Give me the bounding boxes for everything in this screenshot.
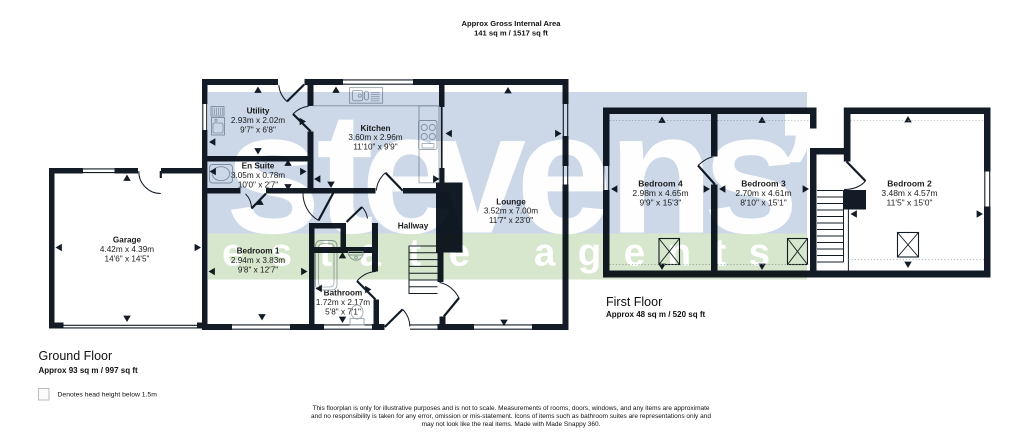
svg-text:and no responsibility is taken: and no responsibility is taken for any e… — [311, 413, 711, 420]
svg-text:’: ’ — [773, 76, 821, 270]
svg-text:1.72m x 2.17m: 1.72m x 2.17m — [316, 298, 370, 307]
svg-text:Ground Floor: Ground Floor — [39, 349, 113, 363]
svg-text:3.48m x 4.57m: 3.48m x 4.57m — [881, 188, 937, 198]
svg-text:Approx 48 sq m / 520 sq ft: Approx 48 sq m / 520 sq ft — [606, 310, 705, 319]
svg-text:v: v — [430, 76, 526, 270]
svg-text:Approx Gross Internal Area: Approx Gross Internal Area — [462, 19, 562, 28]
svg-text:5'8" x 7'1": 5'8" x 7'1" — [325, 307, 361, 316]
svg-text:4.42m x 4.39m: 4.42m x 4.39m — [100, 245, 154, 254]
svg-text:Bedroom 2: Bedroom 2 — [887, 179, 932, 189]
svg-text:This floorplan is only for ill: This floorplan is only for illustrative … — [312, 405, 709, 412]
svg-text:may not look like the real ite: may not look like the real items. Made w… — [422, 421, 601, 428]
svg-text:14'6" x 14'5": 14'6" x 14'5" — [105, 254, 150, 263]
svg-text:Garage: Garage — [113, 236, 142, 245]
svg-text:Denotes head height below 1.5m: Denotes head height below 1.5m — [58, 392, 158, 399]
svg-text:First Floor: First Floor — [606, 295, 662, 309]
svg-text:141 sq m / 1517 sq ft: 141 sq m / 1517 sq ft — [474, 29, 548, 38]
svg-text:Approx 93 sq m / 997 sq ft: Approx 93 sq m / 997 sq ft — [39, 366, 138, 375]
svg-text:11'5" x 15'0": 11'5" x 15'0" — [887, 198, 933, 208]
